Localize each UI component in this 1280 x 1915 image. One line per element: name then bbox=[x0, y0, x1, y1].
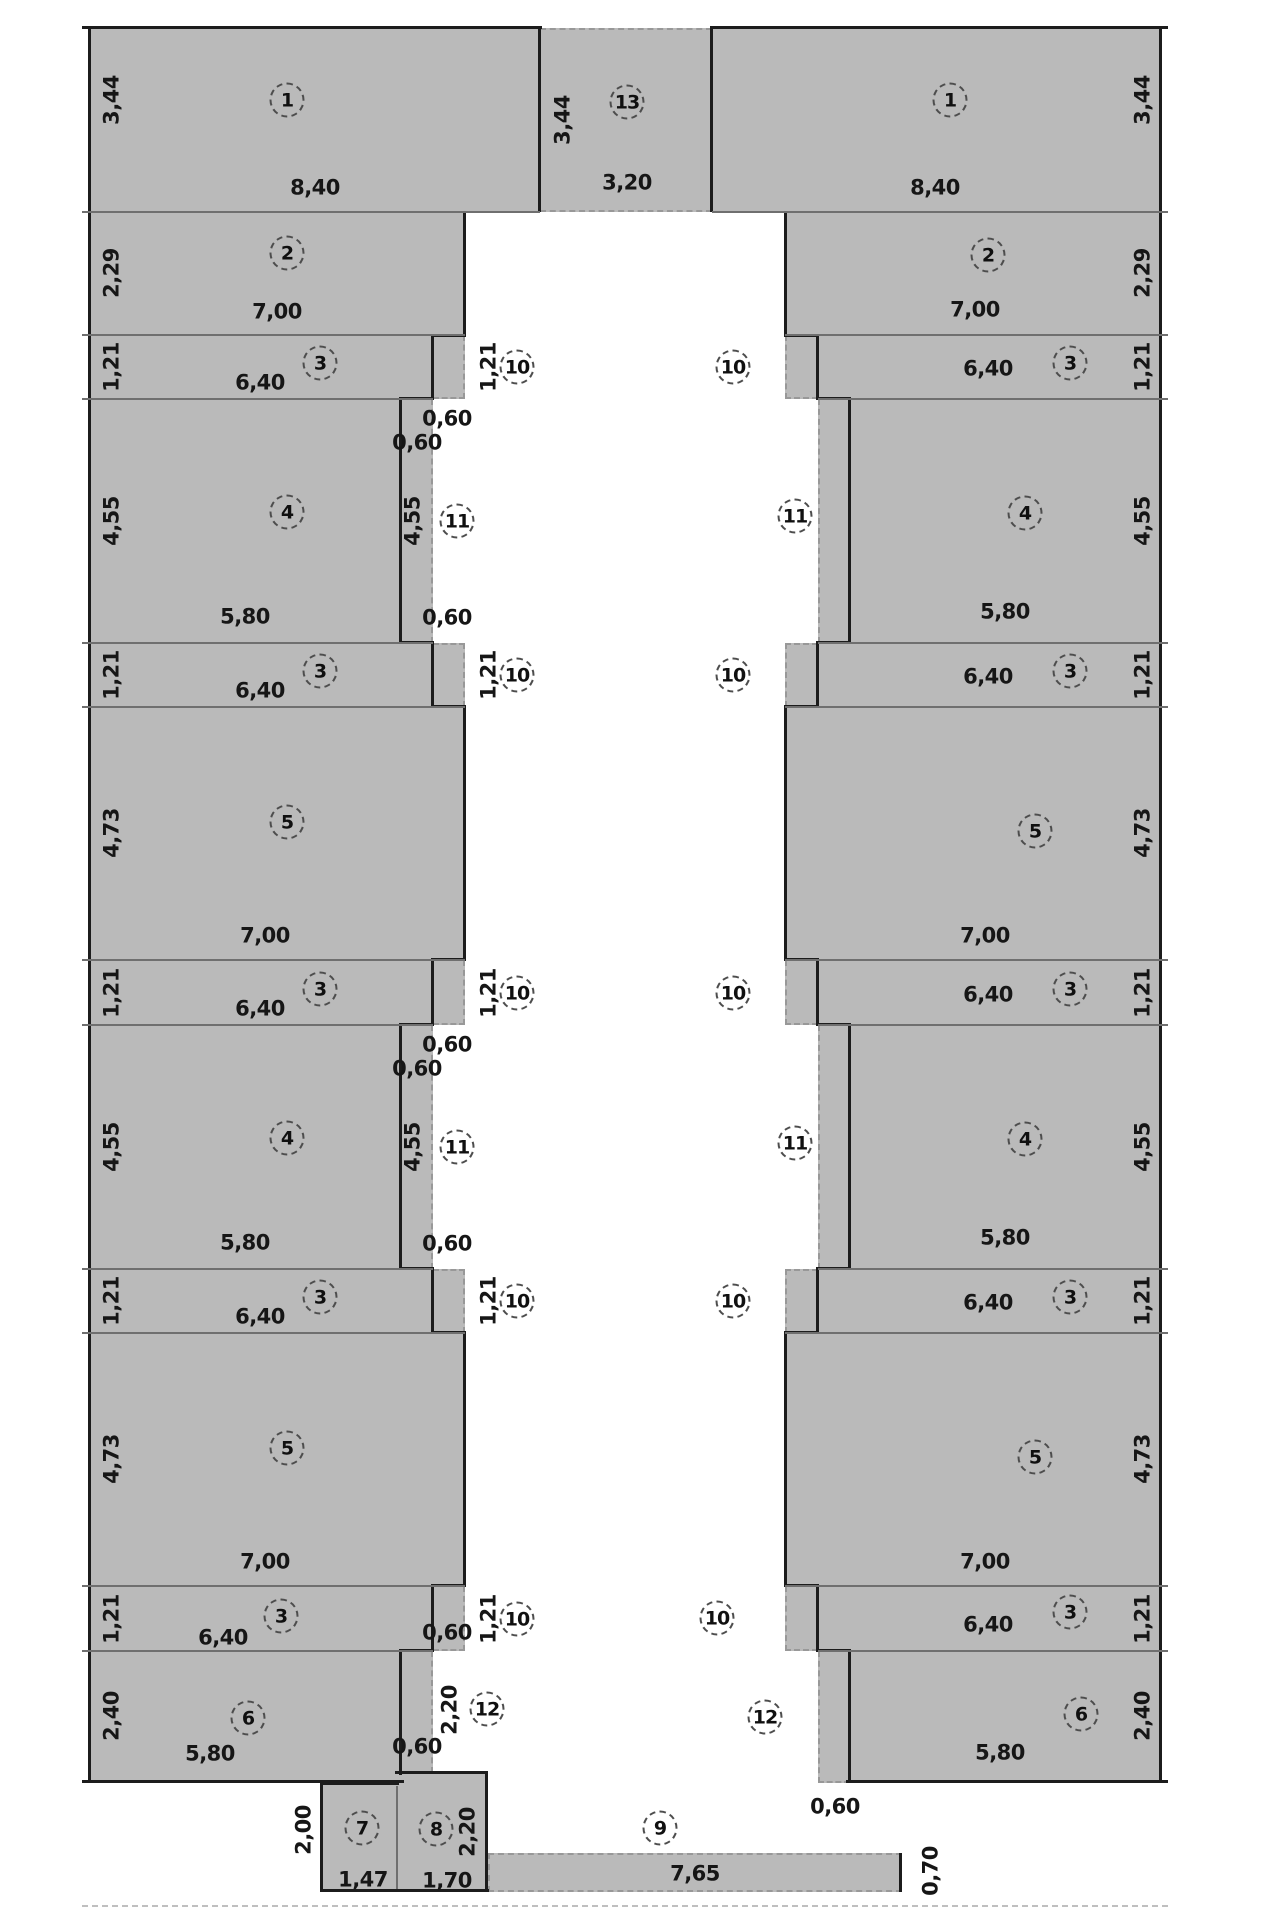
circle-3-left-2: 3 bbox=[303, 654, 338, 689]
circle-6-left: 6 bbox=[231, 1701, 266, 1736]
dim-corr-3: 1,21 bbox=[479, 968, 500, 1018]
circle-4-left-2: 4 bbox=[270, 1121, 305, 1156]
boundary-line bbox=[82, 959, 465, 961]
circle-6-right: 6 bbox=[1064, 1697, 1099, 1732]
dim-wallL-z3-4-h: 1,21 bbox=[102, 1276, 123, 1326]
circle-4-left-1: 4 bbox=[270, 495, 305, 530]
circle-5-right-2: 5 bbox=[1018, 1440, 1053, 1475]
ext-3-right-5 bbox=[785, 1586, 818, 1651]
wall-segment bbox=[538, 28, 541, 212]
circle-5-left-2: 5 bbox=[270, 1431, 305, 1466]
strip-11-right-2 bbox=[818, 1025, 850, 1269]
circle-3-right-3: 3 bbox=[1053, 972, 1088, 1007]
dim-060-left-6: 0,60 bbox=[422, 1234, 472, 1255]
wall-segment bbox=[395, 1771, 488, 1774]
ext-3-left-2 bbox=[433, 643, 465, 707]
dim-corr-2: 1,21 bbox=[479, 650, 500, 700]
circle-1-left: 1 bbox=[270, 83, 305, 118]
dim-z8-h: 2,20 bbox=[458, 1807, 479, 1857]
circle-13: 13 bbox=[610, 85, 645, 120]
boundary-line bbox=[396, 1786, 398, 1889]
circle-9: 9 bbox=[643, 1811, 678, 1846]
ext-3-right-1 bbox=[785, 335, 818, 399]
dim-z2-left-w: 7,00 bbox=[252, 302, 302, 323]
boundary-line bbox=[785, 706, 1168, 708]
wall-segment bbox=[710, 26, 1168, 29]
wall-segment bbox=[485, 1771, 488, 1892]
dim-z3-right-2-w: 6,40 bbox=[963, 667, 1013, 688]
dim-060-left-8: 0,60 bbox=[392, 1737, 442, 1758]
dim-060-left-1: 0,60 bbox=[422, 409, 472, 430]
dim-z3-right-5-w: 6,40 bbox=[963, 1615, 1013, 1636]
dim-z5-right-2-w: 7,00 bbox=[960, 1552, 1010, 1573]
circle-3-left-3: 3 bbox=[303, 972, 338, 1007]
wall-segment bbox=[784, 707, 787, 960]
dim-wallR-z3-2-h: 1,21 bbox=[1133, 650, 1154, 700]
circle-10-right-1: 10 bbox=[716, 350, 751, 385]
dim-z3-right-3-w: 6,40 bbox=[963, 985, 1013, 1006]
dim-z9-w: 7,65 bbox=[670, 1864, 720, 1885]
dim-z4-right-2-w: 5,80 bbox=[980, 1228, 1030, 1249]
dim-wallL-z1-h: 3,44 bbox=[102, 75, 123, 125]
boundary-line bbox=[818, 1650, 1168, 1652]
dim-wallR-z1-h: 3,44 bbox=[1133, 75, 1154, 125]
dim-060-left-7: 0,60 bbox=[422, 1623, 472, 1644]
dim-z3-right-4-w: 6,40 bbox=[963, 1293, 1013, 1314]
dim-strip11-2-h: 4,55 bbox=[403, 1122, 424, 1172]
circle-8: 8 bbox=[419, 1812, 454, 1847]
dim-z6-left-w: 5,80 bbox=[185, 1744, 235, 1765]
wall-segment bbox=[88, 26, 91, 1783]
dim-z9-h: 0,70 bbox=[921, 1846, 942, 1896]
wall-segment bbox=[784, 212, 787, 336]
boundary-line bbox=[82, 1024, 433, 1026]
dim-wallL-z6-h: 2,40 bbox=[102, 1691, 123, 1741]
dim-strip11-1-h: 4,55 bbox=[403, 496, 424, 546]
circle-3-left-1: 3 bbox=[303, 346, 338, 381]
dim-z5-left-2-w: 7,00 bbox=[240, 1552, 290, 1573]
wall-segment bbox=[848, 399, 851, 644]
circle-11-left-1: 11 bbox=[440, 504, 475, 539]
wall-segment bbox=[463, 212, 466, 336]
dim-wallL-z4-2-h: 4,55 bbox=[102, 1122, 123, 1172]
wall-segment bbox=[1159, 26, 1162, 1783]
wall-segment bbox=[848, 1651, 851, 1782]
ext-3-left-3 bbox=[433, 960, 465, 1025]
dim-z4-right-1-w: 5,80 bbox=[980, 602, 1030, 623]
dim-060-right-1: 0,60 bbox=[810, 1797, 860, 1818]
dim-z7-w: 1,47 bbox=[338, 1870, 388, 1891]
dim-z6-right-w: 5,80 bbox=[975, 1743, 1025, 1764]
dim-wallR-z3-1-h: 1,21 bbox=[1133, 342, 1154, 392]
dim-wallL-z3-1-h: 1,21 bbox=[102, 342, 123, 392]
strip-12-right bbox=[818, 1651, 850, 1783]
dim-wallR-z6-h: 2,40 bbox=[1133, 1691, 1154, 1741]
circle-2-right: 2 bbox=[971, 238, 1006, 273]
dim-wallL-z3-5-h: 1,21 bbox=[102, 1594, 123, 1644]
boundary-line bbox=[785, 959, 1168, 961]
dim-wallL-z2-h: 2,29 bbox=[102, 248, 123, 298]
dim-corr-5: 1,21 bbox=[479, 1594, 500, 1644]
dim-z4-left-2-w: 5,80 bbox=[220, 1233, 270, 1254]
boundary-line bbox=[818, 1024, 1168, 1026]
wall-segment bbox=[848, 1025, 851, 1270]
dim-z8-w: 1,70 bbox=[422, 1871, 472, 1892]
dim-z13-h: 3,44 bbox=[553, 95, 574, 145]
wall-segment bbox=[82, 26, 542, 29]
boundary-line bbox=[82, 1585, 465, 1587]
circle-11-left-2: 11 bbox=[440, 1130, 475, 1165]
boundary-line bbox=[818, 642, 1168, 644]
circle-3-left-5: 3 bbox=[264, 1599, 299, 1634]
wall-segment bbox=[463, 707, 466, 960]
dim-wallL-z5-2-h: 4,73 bbox=[102, 1434, 123, 1484]
circle-10-left-1: 10 bbox=[500, 350, 535, 385]
circle-3-right-1: 3 bbox=[1053, 346, 1088, 381]
circle-7: 7 bbox=[345, 1811, 380, 1846]
circle-10-left-5: 10 bbox=[500, 1602, 535, 1637]
wall-segment bbox=[816, 960, 819, 1025]
dim-060-left-4: 0,60 bbox=[422, 1035, 472, 1056]
dim-wallR-z5-2-h: 4,73 bbox=[1133, 1434, 1154, 1484]
dim-wallR-z3-3-h: 1,21 bbox=[1133, 968, 1154, 1018]
wall-segment bbox=[899, 1853, 902, 1892]
circle-4-right-2: 4 bbox=[1008, 1122, 1043, 1157]
circle-3-right-4: 3 bbox=[1053, 1280, 1088, 1315]
dim-wallL-z3-2-h: 1,21 bbox=[102, 650, 123, 700]
wall-segment bbox=[816, 1586, 819, 1651]
boundary-line bbox=[82, 1268, 433, 1270]
circle-10-right-5: 10 bbox=[700, 1601, 735, 1636]
circle-10-left-3: 10 bbox=[500, 976, 535, 1011]
dim-z4-left-1-w: 5,80 bbox=[220, 607, 270, 628]
boundary-line bbox=[82, 1905, 1168, 1907]
circle-5-right-1: 5 bbox=[1018, 814, 1053, 849]
dim-wallR-z3-5-h: 1,21 bbox=[1133, 1594, 1154, 1644]
boundary-line bbox=[82, 642, 433, 644]
circle-5-left-1: 5 bbox=[270, 805, 305, 840]
dim-corr-1: 1,21 bbox=[479, 342, 500, 392]
dim-z3-left-5-w: 6,40 bbox=[198, 1628, 248, 1649]
boundary-line bbox=[785, 334, 1168, 336]
wall-segment bbox=[463, 1333, 466, 1586]
dim-corr-4: 1,21 bbox=[479, 1276, 500, 1326]
circle-10-left-2: 10 bbox=[500, 658, 535, 693]
circle-1-right: 1 bbox=[933, 83, 968, 118]
dim-z3-left-1-w: 6,40 bbox=[235, 373, 285, 394]
dim-wallL-z5-1-h: 4,73 bbox=[102, 808, 123, 858]
dim-wallR-z5-1-h: 4,73 bbox=[1133, 808, 1154, 858]
wall-segment bbox=[710, 28, 713, 212]
dim-wallL-z3-3-h: 1,21 bbox=[102, 968, 123, 1018]
dim-z5-right-1-w: 7,00 bbox=[960, 926, 1010, 947]
boundary-line bbox=[785, 1585, 1168, 1587]
circle-4-right-1: 4 bbox=[1008, 496, 1043, 531]
circle-10-right-2: 10 bbox=[716, 658, 751, 693]
floor-plan: 1233333445567891310101010101111121233333… bbox=[0, 0, 1280, 1915]
boundary-line bbox=[82, 211, 540, 213]
dim-z3-right-1-w: 6,40 bbox=[963, 359, 1013, 380]
ext-3-right-4 bbox=[785, 1269, 818, 1333]
wall-segment bbox=[431, 960, 434, 1025]
boundary-line bbox=[82, 1650, 433, 1652]
dim-wallR-z2-h: 2,29 bbox=[1133, 248, 1154, 298]
ext-3-right-3 bbox=[785, 960, 818, 1025]
circle-11-right-1: 11 bbox=[778, 499, 813, 534]
wall-segment bbox=[816, 335, 819, 400]
wall-segment bbox=[816, 1269, 819, 1333]
dim-wallR-z4-1-h: 4,55 bbox=[1133, 496, 1154, 546]
boundary-line bbox=[82, 398, 433, 400]
room-3-left-5 bbox=[90, 1586, 433, 1651]
dim-z7-h: 2,00 bbox=[294, 1805, 315, 1855]
boundary-line bbox=[785, 1332, 1168, 1334]
circle-12-right: 12 bbox=[748, 1700, 783, 1735]
dim-060-left-2: 0,60 bbox=[392, 433, 442, 454]
ext-3-right-2 bbox=[785, 643, 818, 707]
dim-z3-left-4-w: 6,40 bbox=[235, 1307, 285, 1328]
circle-10-left-4: 10 bbox=[500, 1284, 535, 1319]
boundary-line bbox=[82, 706, 465, 708]
wall-segment bbox=[784, 1333, 787, 1586]
ext-3-left-1 bbox=[433, 335, 465, 399]
wall-segment bbox=[431, 643, 434, 707]
circle-10-right-3: 10 bbox=[716, 976, 751, 1011]
boundary-line bbox=[82, 334, 465, 336]
ext-3-left-4 bbox=[433, 1269, 465, 1333]
strip-11-right-1 bbox=[818, 399, 850, 643]
wall-segment bbox=[320, 1782, 323, 1892]
wall-segment bbox=[431, 1269, 434, 1333]
wall-segment bbox=[846, 1780, 1168, 1783]
dim-060-left-5: 0,60 bbox=[392, 1059, 442, 1080]
circle-10-right-4: 10 bbox=[716, 1284, 751, 1319]
dim-z1-right-w: 8,40 bbox=[910, 178, 960, 199]
dim-z3-left-2-w: 6,40 bbox=[235, 681, 285, 702]
circle-2-left: 2 bbox=[270, 236, 305, 271]
dim-z1-left-w: 8,40 bbox=[290, 178, 340, 199]
boundary-line bbox=[818, 398, 1168, 400]
dim-wallR-z4-2-h: 4,55 bbox=[1133, 1122, 1154, 1172]
dim-z5-left-1-w: 7,00 bbox=[240, 926, 290, 947]
circle-3-left-4: 3 bbox=[303, 1280, 338, 1315]
room-5-right-2 bbox=[785, 1333, 1160, 1586]
room-5-right-1 bbox=[785, 707, 1160, 960]
wall-segment bbox=[320, 1782, 399, 1785]
wall-segment bbox=[431, 335, 434, 400]
dim-z13-w: 3,20 bbox=[602, 173, 652, 194]
circle-3-right-2: 3 bbox=[1053, 654, 1088, 689]
wall-segment bbox=[816, 643, 819, 707]
boundary-line bbox=[712, 211, 1168, 213]
circle-12-left: 12 bbox=[470, 1692, 505, 1727]
dim-wallR-z3-4-h: 1,21 bbox=[1133, 1276, 1154, 1326]
boundary-line bbox=[82, 1332, 465, 1334]
circle-3-right-5: 3 bbox=[1053, 1595, 1088, 1630]
dim-z2-right-w: 7,00 bbox=[950, 300, 1000, 321]
dim-060-left-3: 0,60 bbox=[422, 608, 472, 629]
boundary-line bbox=[818, 1268, 1168, 1270]
dim-wallL-z4-1-h: 4,55 bbox=[102, 496, 123, 546]
circle-11-right-2: 11 bbox=[778, 1126, 813, 1161]
dim-z3-left-3-w: 6,40 bbox=[235, 999, 285, 1020]
dim-strip12-h: 2,20 bbox=[440, 1685, 461, 1735]
